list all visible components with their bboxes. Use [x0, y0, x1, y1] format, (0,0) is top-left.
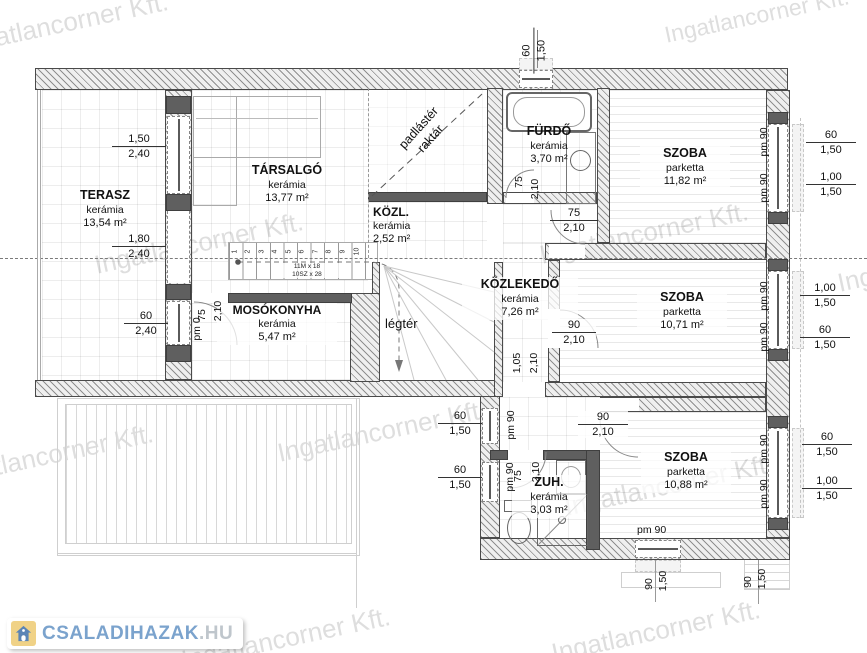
room-name: FÜRDŐ [504, 124, 594, 140]
dim-furdo-door-width: 75 [513, 170, 525, 194]
dim-value: 90 [578, 411, 628, 425]
room-finish: kerámia [237, 179, 337, 192]
dim-value: 1,00 [800, 282, 850, 296]
dim-szoba-also-door: 902,10 [578, 411, 628, 438]
room-finish: kerámia [373, 220, 443, 233]
dim-value: 1,00 [802, 475, 852, 489]
dim-value: 1,50 [806, 185, 856, 198]
dim-bottom-right-height: 1,50 [756, 564, 768, 594]
dim-parapet: pm 90 [758, 124, 770, 160]
dim-parapet: pm 90 [758, 170, 770, 206]
dim-value: 60 [800, 324, 850, 338]
dim-value: 2,40 [124, 324, 168, 337]
logo-text-suffix: .HU [199, 623, 233, 645]
floor-plan: Ingatlancorner Kft. Ingatlancorner Kft. … [0, 0, 867, 653]
dim-terasz-window: 1,502,40 [112, 133, 166, 160]
dim-value: 75 [550, 207, 598, 221]
dim-bottom-right-width: 90 [742, 570, 754, 594]
dim-value: 1,50 [800, 296, 850, 309]
room-area: 10,71 m² [637, 319, 727, 333]
logo-text-main: CSALADIHAZAK [42, 623, 199, 645]
dim-parapet: pm 90 [758, 278, 770, 314]
dim-szoba-also-window-1: 601,50 [802, 431, 852, 458]
dim-szoba-felso-window-2: 1,001,50 [806, 171, 856, 198]
dim-value: 60 [806, 129, 856, 143]
dim-value: 1,50 [535, 28, 548, 74]
sofa-chaise [193, 96, 237, 206]
room-label-furdo: FÜRDŐ kerámia 3,70 m² [504, 124, 594, 167]
dim-value: 60 [438, 410, 482, 424]
room-area: 13,54 m² [60, 217, 150, 231]
room-finish: kerámia [462, 293, 578, 306]
room-area: 7,26 m² [462, 306, 578, 320]
room-name: SZOBA [640, 146, 730, 162]
dim-value: 2,10 [552, 333, 596, 346]
dim-value: 2,10 [578, 425, 628, 438]
room-finish: parketta [637, 306, 727, 319]
dim-bottom-window-width: 90 [643, 572, 655, 596]
dim-value: 60 [438, 464, 482, 478]
dim-kozlekedo-opening-width: 1,05 [511, 348, 523, 378]
csaladihazak-logo: CSALADIHAZAK .HU [7, 618, 243, 649]
dim-szoba-kozepso-door: 902,10 [552, 319, 596, 346]
dim-value: 1,50 [438, 478, 482, 491]
dim-value: 2,40 [112, 247, 166, 260]
room-finish: kerámia [512, 491, 586, 504]
room-label-tarsalgo: TÁRSALGÓ kerámia 13,77 m² [237, 163, 337, 206]
dim-parapet: pm 90 [758, 319, 770, 355]
dim-value: 1,50 [802, 489, 852, 502]
dim-kozlekedo-opening-height: 2,10 [528, 348, 540, 378]
room-finish: parketta [640, 162, 730, 175]
room-label-szoba-kozepso: SZOBA parketta 10,71 m² [637, 290, 727, 333]
room-area: 2,52 m² [373, 233, 443, 247]
dim-mosokonyha-door-width: 75 [196, 303, 208, 327]
dim-zuh-window-1: 601,50 [438, 410, 482, 437]
room-name: SZOBA [641, 450, 731, 466]
room-finish: kerámia [60, 204, 150, 217]
room-label-terasz: TERASZ kerámia 13,54 m² [60, 188, 150, 231]
room-finish: kerámia [217, 318, 337, 331]
house-icon [11, 621, 36, 646]
dim-terasz-door: 1,802,40 [112, 233, 166, 260]
dim-bottom-window-height: 1,50 [657, 566, 669, 596]
room-finish: parketta [641, 466, 731, 479]
dim-parapet: pm 90 [758, 476, 770, 512]
dim-parapet: pm 90 [758, 431, 770, 467]
dim-mosokonyha-window: 602,40 [124, 310, 168, 337]
dim-value: 1,50 [800, 338, 850, 351]
dim-zuh-window-2: 601,50 [438, 464, 482, 491]
room-area: 13,77 m² [237, 192, 337, 206]
room-label-szoba-also: SZOBA parketta 10,88 m² [641, 450, 731, 493]
room-name: MOSÓKONYHA [217, 303, 337, 318]
dim-value: 2,40 [112, 147, 166, 160]
dim-zuh-door-height: 2,10 [530, 457, 542, 487]
dim-mosokonyha-door-height: 2,10 [212, 296, 224, 326]
room-label-legter: légtér [385, 316, 418, 331]
dim-szoba-felso-window-1: 601,50 [806, 129, 856, 156]
dim-value: 1,00 [806, 171, 856, 185]
room-area: 5,47 m² [217, 331, 337, 345]
room-label-kozl: KÖZL. kerámia 2,52 m² [373, 205, 443, 247]
room-area: 10,88 m² [641, 479, 731, 493]
dim-value: 60 [520, 28, 534, 74]
room-label-mosokonyha: MOSÓKONYHA kerámia 5,47 m² [217, 303, 337, 345]
room-name: TERASZ [60, 188, 150, 204]
room-label-szoba-felso: SZOBA parketta 11,82 m² [640, 146, 730, 189]
room-label-kozlekedo: KÖZLEKEDŐ kerámia 7,26 m² [462, 277, 578, 320]
bathtub-inner [513, 97, 585, 127]
room-name: SZOBA [637, 290, 727, 306]
dim-szoba-felso-door: 752,10 [550, 207, 598, 234]
dim-value: 2,10 [550, 221, 598, 234]
dim-szoba-also-window-2: 1,001,50 [802, 475, 852, 502]
room-finish: kerámia [504, 140, 594, 153]
dim-value: 90 [552, 319, 596, 333]
dim-szoba-kozepso-window-1: 1,001,50 [800, 282, 850, 309]
dim-value: 1,50 [438, 424, 482, 437]
room-area: 3,03 m² [512, 504, 586, 518]
dim-value: 60 [124, 310, 168, 324]
dim-parapet: pm 90 [505, 407, 517, 443]
dim-furdo-door-height: 2,10 [529, 174, 541, 204]
dim-zuh-door-width: 75 [512, 464, 524, 488]
dim-value: 1,80 [112, 233, 166, 247]
dim-parapet-bottom-window: pm 90 [637, 524, 666, 536]
dim-value: 1,50 [112, 133, 166, 147]
room-name: KÖZLEKEDŐ [462, 277, 578, 293]
dim-value: 60 [802, 431, 852, 445]
dim-value: 1,50 [806, 143, 856, 156]
room-name: TÁRSALGÓ [237, 163, 337, 179]
room-area: 3,70 m² [504, 153, 594, 167]
dim-szoba-kozepso-window-2: 601,50 [800, 324, 850, 351]
sofa-seam [196, 118, 318, 119]
room-name: KÖZL. [373, 205, 443, 220]
dim-value: 1,50 [802, 445, 852, 458]
dim-furdo-top-window: 601,50 [520, 28, 547, 74]
room-area: 11,82 m² [640, 175, 730, 189]
